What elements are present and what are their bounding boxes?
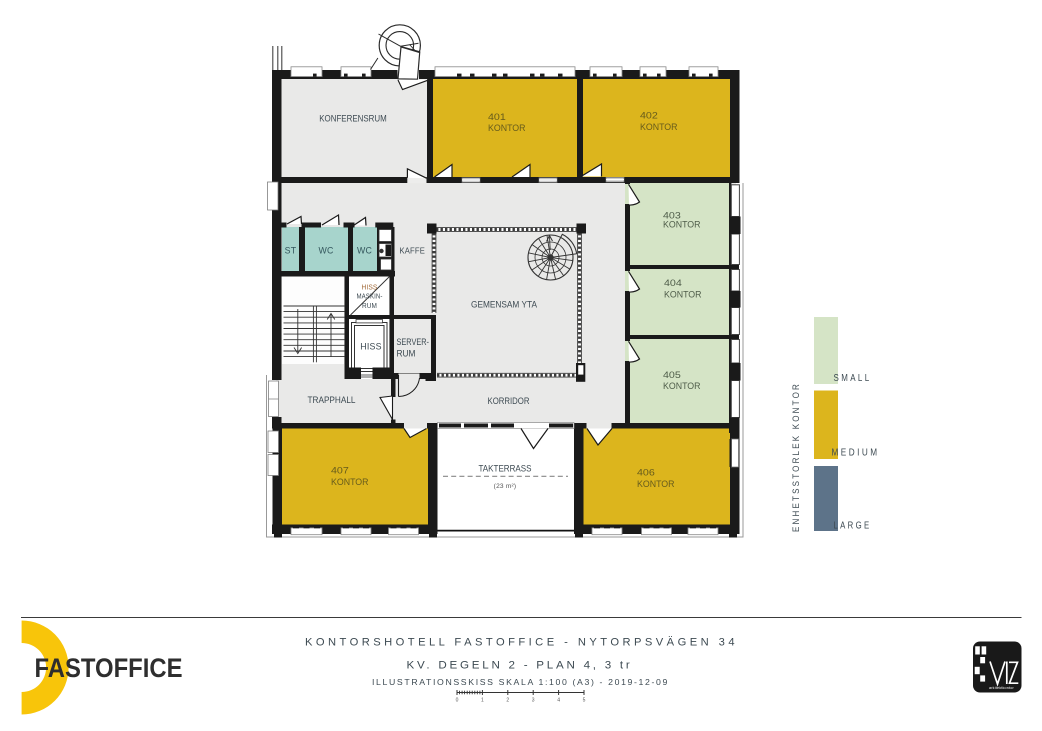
svg-text:0: 0 bbox=[456, 698, 459, 704]
svg-text:404: 404 bbox=[664, 278, 682, 288]
svg-text:KONTOR: KONTOR bbox=[640, 122, 678, 132]
svg-text:MEDIUM: MEDIUM bbox=[832, 448, 880, 459]
svg-text:405: 405 bbox=[663, 370, 681, 380]
svg-text:ENHETSSTORLEK KONTOR: ENHETSSTORLEK KONTOR bbox=[791, 382, 802, 532]
svg-text:1: 1 bbox=[481, 698, 484, 704]
svg-text:KONTOR: KONTOR bbox=[663, 220, 701, 230]
svg-text:KONTOR: KONTOR bbox=[663, 381, 701, 391]
svg-text:MASKIN-: MASKIN- bbox=[357, 294, 383, 301]
svg-text:401: 401 bbox=[488, 112, 506, 122]
svg-text:5: 5 bbox=[583, 698, 586, 704]
svg-text:402: 402 bbox=[640, 111, 658, 121]
svg-text:406: 406 bbox=[637, 468, 655, 478]
svg-text:KONTOR: KONTOR bbox=[488, 123, 526, 133]
svg-text:ST: ST bbox=[285, 246, 297, 256]
svg-text:HISS: HISS bbox=[360, 342, 382, 352]
svg-text:4: 4 bbox=[557, 698, 560, 704]
svg-text:WC: WC bbox=[357, 246, 373, 256]
svg-text:TAKTERRASS: TAKTERRASS bbox=[479, 464, 532, 474]
svg-text:arkitektkontor: arkitektkontor bbox=[989, 686, 1015, 690]
svg-text:3: 3 bbox=[532, 698, 535, 704]
svg-text:KONTORSHOTELL FASTOFFICE - NYT: KONTORSHOTELL FASTOFFICE - NYTORPSVÄGEN … bbox=[305, 637, 738, 649]
svg-text:FASTOFFICE: FASTOFFICE bbox=[35, 653, 183, 683]
svg-text:RUM: RUM bbox=[397, 349, 416, 359]
svg-text:SMALL: SMALL bbox=[834, 373, 872, 384]
svg-text:KONTOR: KONTOR bbox=[664, 290, 702, 300]
svg-text:KORRIDOR: KORRIDOR bbox=[488, 396, 530, 406]
svg-text:RUM: RUM bbox=[362, 303, 377, 310]
svg-text:KAFFE: KAFFE bbox=[400, 246, 426, 256]
svg-text:KONTOR: KONTOR bbox=[637, 479, 675, 489]
svg-text:HISS: HISS bbox=[362, 285, 378, 292]
svg-text:SERVER-: SERVER- bbox=[397, 337, 430, 347]
svg-text:2: 2 bbox=[506, 698, 509, 704]
svg-text:407: 407 bbox=[331, 466, 349, 476]
svg-text:LARGE: LARGE bbox=[834, 521, 872, 532]
svg-text:(23 m²): (23 m²) bbox=[494, 483, 517, 490]
svg-text:TRAPPHALL: TRAPPHALL bbox=[308, 395, 356, 405]
svg-text:KONTOR: KONTOR bbox=[331, 477, 369, 487]
svg-text:KV. DEGELN 2 - PLAN 4, 3 tr: KV. DEGELN 2 - PLAN 4, 3 tr bbox=[407, 660, 633, 672]
svg-text:GEMENSAM YTA: GEMENSAM YTA bbox=[471, 300, 538, 311]
svg-text:WC: WC bbox=[318, 246, 334, 256]
svg-text:ILLUSTRATIONSSKISS SKALA 1:100: ILLUSTRATIONSSKISS SKALA 1:100 (A3) - 20… bbox=[372, 678, 669, 687]
svg-text:KONFERENSRUM: KONFERENSRUM bbox=[319, 114, 387, 125]
